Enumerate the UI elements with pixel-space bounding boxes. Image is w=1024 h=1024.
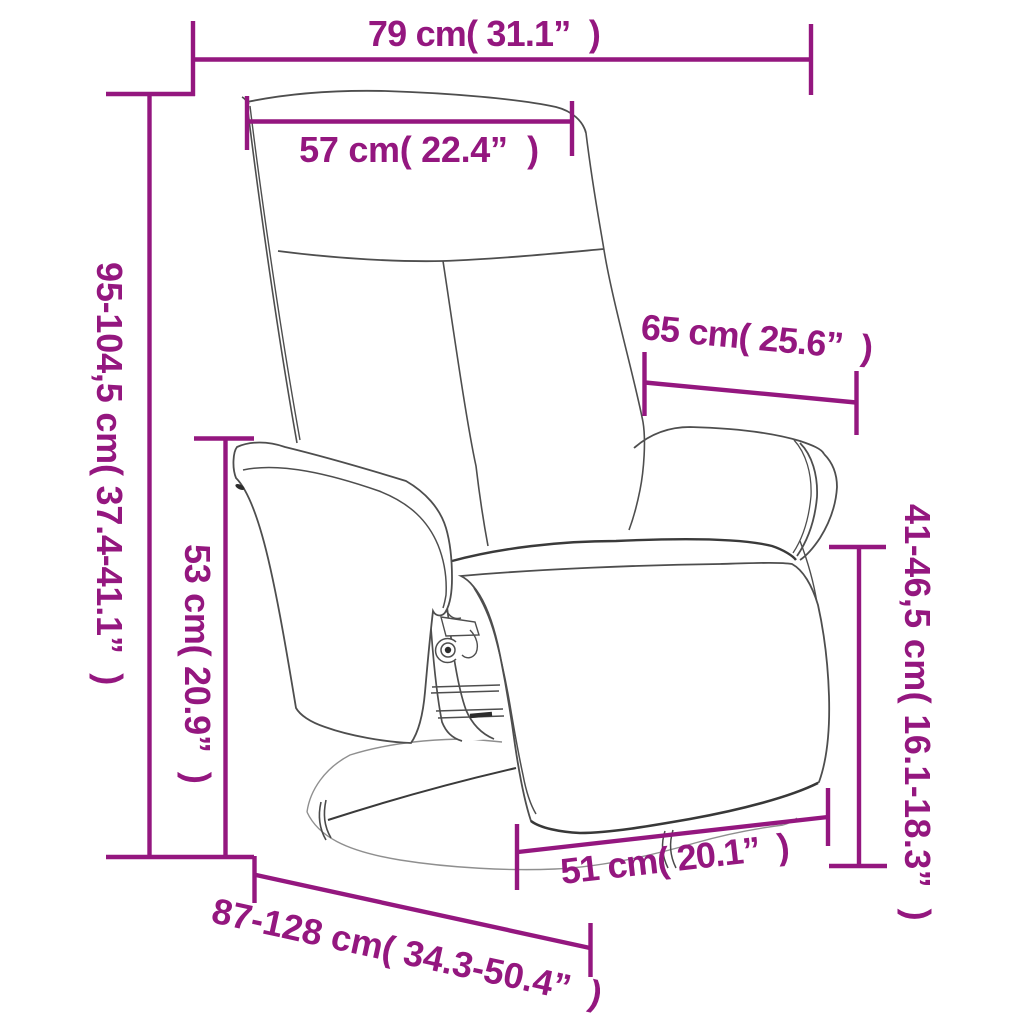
svg-text:53 cm( 20.9” ): 53 cm( 20.9” ) — [177, 544, 218, 784]
svg-text:41-46,5 cm( 16.1-18.3” ): 41-46,5 cm( 16.1-18.3” ) — [897, 504, 938, 921]
svg-text:95-104,5 cm( 37.4-41.1” ): 95-104,5 cm( 37.4-41.1” ) — [89, 262, 130, 685]
svg-text:79 cm( 31.1” ): 79 cm( 31.1” ) — [368, 13, 600, 54]
svg-text:57 cm( 22.4” ): 57 cm( 22.4” ) — [299, 129, 539, 170]
